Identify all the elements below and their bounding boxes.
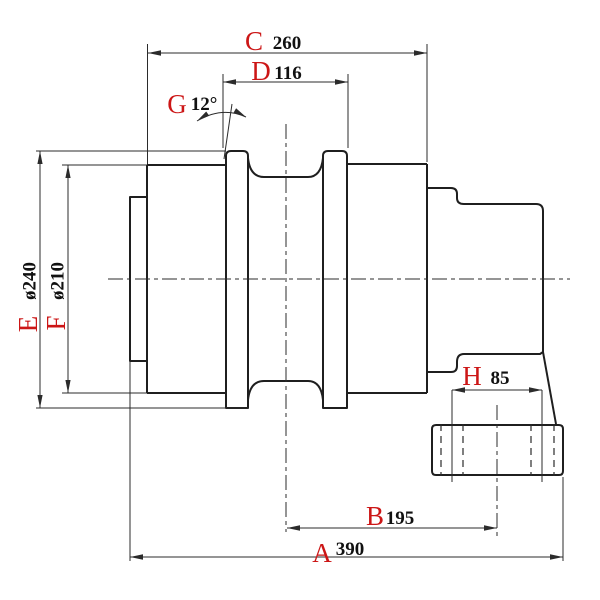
dim-value-A: 390 <box>336 539 365 560</box>
dim-value-C: 260 <box>273 33 302 54</box>
arrowhead <box>287 525 300 530</box>
dim-letter-H: H <box>462 361 482 391</box>
arrowhead <box>37 151 42 164</box>
arrowhead <box>37 395 42 408</box>
dimension-B: B 195 <box>287 501 497 531</box>
dim-value-D: 116 <box>274 63 301 84</box>
dim-letter-D: D <box>251 56 271 86</box>
bracket-lower-outline <box>427 352 543 372</box>
arrowhead <box>148 50 161 55</box>
dimension-F: F ø210 <box>41 165 147 393</box>
dim-value-G: 12° <box>191 94 218 115</box>
arrowhead <box>223 79 236 84</box>
bracket-upper-outline <box>427 188 543 352</box>
arrowhead <box>335 79 348 84</box>
drawing-sheet: C 260 D 116 G 12° E ø240 F ø2 <box>0 0 600 600</box>
arrowhead <box>234 108 247 117</box>
arrowhead <box>550 554 563 559</box>
arrowhead <box>414 50 427 55</box>
dim-letter-E: E <box>13 316 43 333</box>
arrowhead <box>65 165 70 178</box>
dim-letter-G: G <box>167 89 187 119</box>
part-outline <box>130 151 563 475</box>
dim-letter-F: F <box>41 315 71 330</box>
dimension-G: G 12° <box>167 89 246 159</box>
dim-value-F: ø210 <box>48 262 69 300</box>
arrowhead <box>65 380 70 393</box>
dim-letter-A: A <box>312 538 332 568</box>
arrowhead <box>529 387 542 392</box>
dim-value-H: 85 <box>491 368 510 389</box>
dim-value-E: ø240 <box>20 262 41 300</box>
dim-letter-B: B <box>366 501 384 531</box>
dim-letter-C: C <box>245 26 263 56</box>
dimension-C: C 260 <box>148 26 428 164</box>
dim-value-B: 195 <box>386 508 415 529</box>
arrowhead <box>130 554 143 559</box>
arrowhead <box>484 525 497 530</box>
bracket-diagonal-brace <box>543 352 556 424</box>
technical-drawing-canvas: C 260 D 116 G 12° E ø240 F ø2 <box>0 0 600 600</box>
